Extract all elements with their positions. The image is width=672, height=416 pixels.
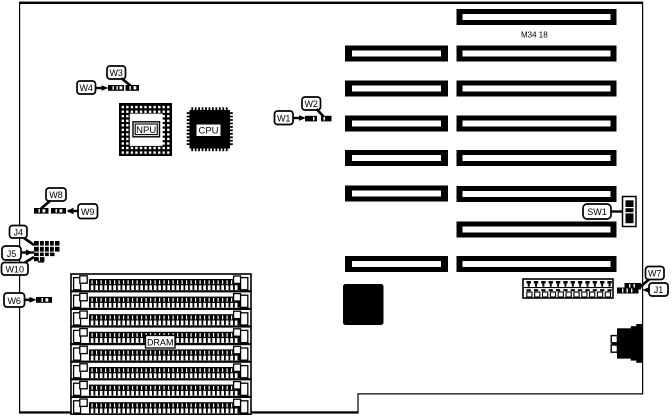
svg-text:W2: W2 [304, 99, 318, 109]
svg-text:W6: W6 [7, 296, 21, 306]
svg-text:SW1: SW1 [587, 207, 607, 217]
svg-text:J4: J4 [13, 227, 23, 237]
svg-text:NPU: NPU [136, 125, 156, 136]
svg-text:W1: W1 [277, 113, 291, 123]
svg-text:W10: W10 [5, 264, 24, 274]
svg-text:W3: W3 [109, 68, 123, 78]
svg-text:W9: W9 [81, 207, 95, 217]
svg-text:CPU: CPU [198, 126, 218, 137]
svg-text:W7: W7 [648, 269, 662, 279]
svg-text:W4: W4 [79, 83, 93, 93]
svg-text:J1: J1 [654, 285, 664, 295]
svg-text:M34 18: M34 18 [521, 31, 548, 40]
svg-text:W8: W8 [49, 190, 63, 200]
svg-text:DRAM: DRAM [147, 337, 174, 347]
svg-text:J5: J5 [7, 249, 17, 259]
